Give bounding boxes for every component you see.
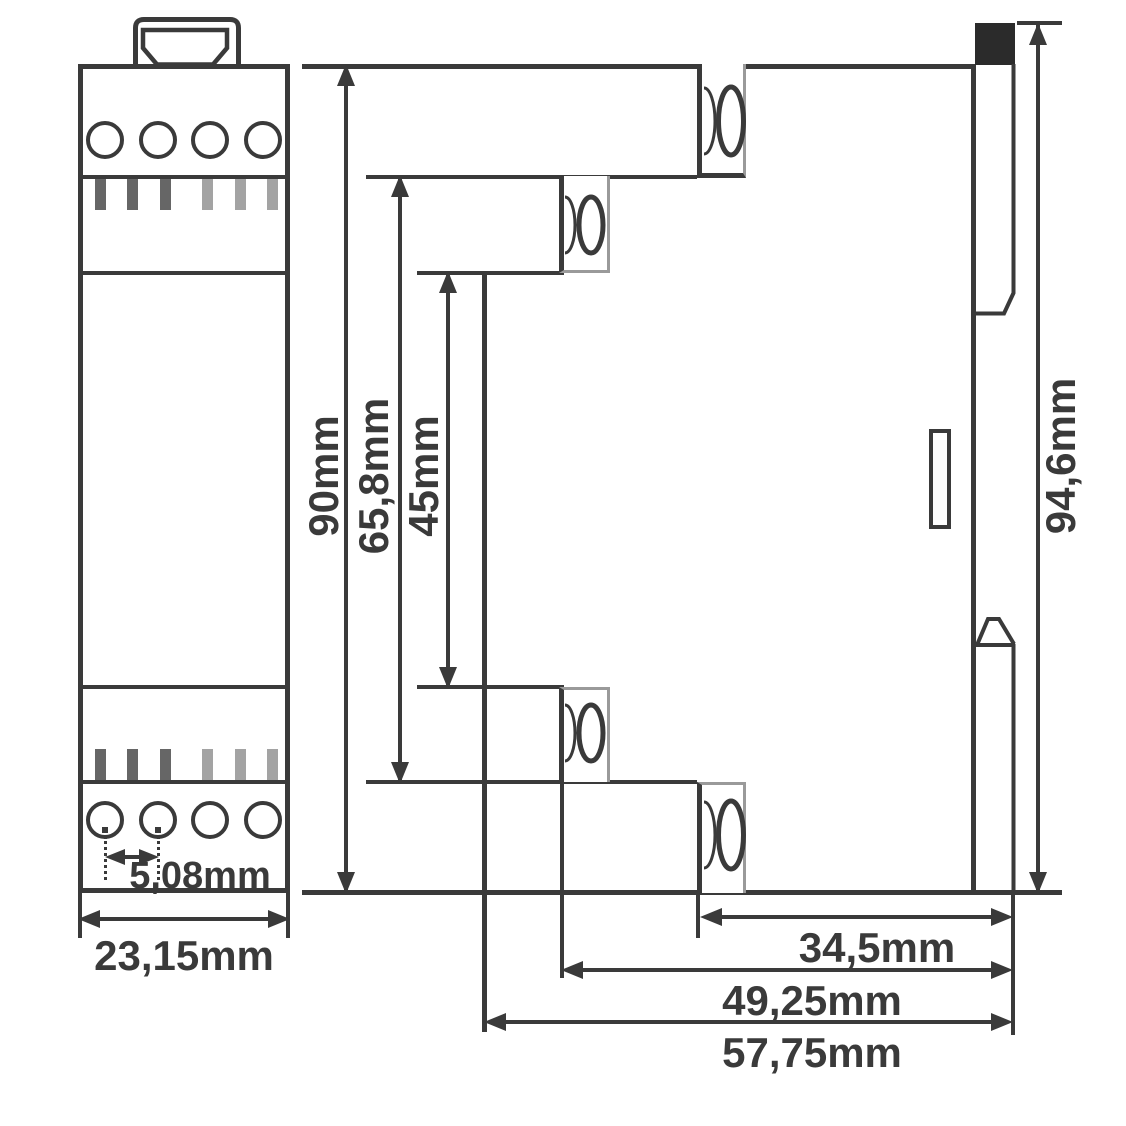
connector-slot — [127, 179, 138, 210]
connector-slot — [267, 179, 278, 210]
depth-57-label: 57,75mm — [722, 1032, 902, 1074]
arrowhead-left — [700, 908, 722, 926]
width-dimension-line — [96, 917, 272, 921]
side-top-edge — [302, 64, 975, 69]
contact-arc — [565, 197, 575, 253]
height-65-label: 65,8mm — [353, 398, 395, 554]
arrowhead-down — [439, 667, 457, 689]
arrowhead-left — [561, 961, 583, 979]
terminal-circle — [244, 801, 282, 839]
arrowhead-down — [391, 762, 409, 784]
arrowhead-up — [1029, 23, 1047, 45]
height-90-label: 90mm — [303, 415, 345, 536]
front-separator-line — [83, 685, 285, 689]
arrowhead-left — [105, 849, 125, 865]
contact-arc — [704, 802, 715, 868]
depth-34-dimension-line — [716, 915, 997, 919]
height-45-label: 45mm — [403, 415, 445, 536]
terminal-contact-icon — [564, 194, 606, 256]
connector-slot — [95, 179, 106, 210]
terminal-circle — [244, 121, 282, 159]
terminal-contact-icon — [703, 798, 747, 872]
arrowhead-right — [268, 910, 290, 928]
din-tab-inner — [143, 30, 227, 65]
terminal-circle — [86, 121, 124, 159]
front-separator-line — [83, 780, 285, 784]
circle-center-dot — [102, 827, 108, 833]
terminal-circle — [86, 801, 124, 839]
side-step-edge — [366, 780, 697, 784]
depth-34-label: 34,5mm — [799, 927, 955, 969]
arrowhead-down — [1029, 872, 1047, 894]
contact-arc — [565, 705, 575, 761]
din-rail-spring-clip — [972, 616, 1018, 895]
terminal-circle — [191, 121, 229, 159]
side-front-face — [482, 271, 487, 1032]
connector-slot — [267, 749, 278, 780]
arrowhead-down — [337, 872, 355, 894]
circle-center-dot — [155, 827, 161, 833]
connector-slot — [160, 179, 171, 210]
spring-clip-point — [977, 619, 1014, 645]
arrowhead-right — [991, 961, 1013, 979]
terminal-contact-icon — [703, 84, 747, 158]
din-rail-upper-guide — [972, 64, 1018, 316]
front-view-housing — [78, 64, 290, 893]
contact-ellipse — [719, 87, 744, 155]
connector-slot — [95, 749, 106, 780]
arrowhead-up — [337, 64, 355, 86]
connector-slot — [202, 179, 213, 210]
pitch-dimension-label: 5,08mm — [129, 857, 271, 895]
din-tab-outer — [136, 20, 239, 70]
din-tab — [133, 17, 241, 69]
depth-extension-line — [560, 782, 564, 978]
connector-slot — [235, 179, 246, 210]
terminal-contact-icon — [564, 702, 606, 764]
depth-57-dimension-line — [500, 1020, 997, 1024]
contact-arc — [704, 88, 715, 154]
connector-slot — [127, 749, 138, 780]
dimension-drawing: 5,08mm 23,15mm — [0, 0, 1126, 1126]
terminal-circle — [139, 121, 177, 159]
depth-49-dimension-line — [577, 968, 997, 972]
arrowhead-left — [78, 910, 100, 928]
height-94-label: 94,6mm — [1040, 378, 1082, 534]
front-separator-line — [83, 175, 285, 179]
contact-ellipse — [579, 705, 603, 761]
arrowhead-up — [439, 271, 457, 293]
front-separator-line — [83, 271, 285, 275]
terminal-circle — [191, 801, 229, 839]
side-step-edge — [366, 175, 697, 179]
din-rail-clip-block — [975, 23, 1015, 65]
arrowhead-up — [391, 175, 409, 197]
upper-guide-outline — [972, 64, 1014, 314]
arrowhead-right — [991, 1013, 1013, 1031]
arrowhead-left — [484, 1013, 506, 1031]
depth-49-label: 49,25mm — [722, 980, 902, 1022]
contact-ellipse — [579, 197, 603, 253]
latch-slot — [929, 429, 951, 529]
contact-ellipse — [719, 801, 744, 869]
connector-slot — [235, 749, 246, 780]
connector-slot — [202, 749, 213, 780]
arrowhead-right — [991, 908, 1013, 926]
connector-slot — [160, 749, 171, 780]
terminal-circle — [139, 801, 177, 839]
width-dimension-label: 23,15mm — [94, 935, 274, 977]
side-bottom-edge — [302, 890, 1062, 895]
